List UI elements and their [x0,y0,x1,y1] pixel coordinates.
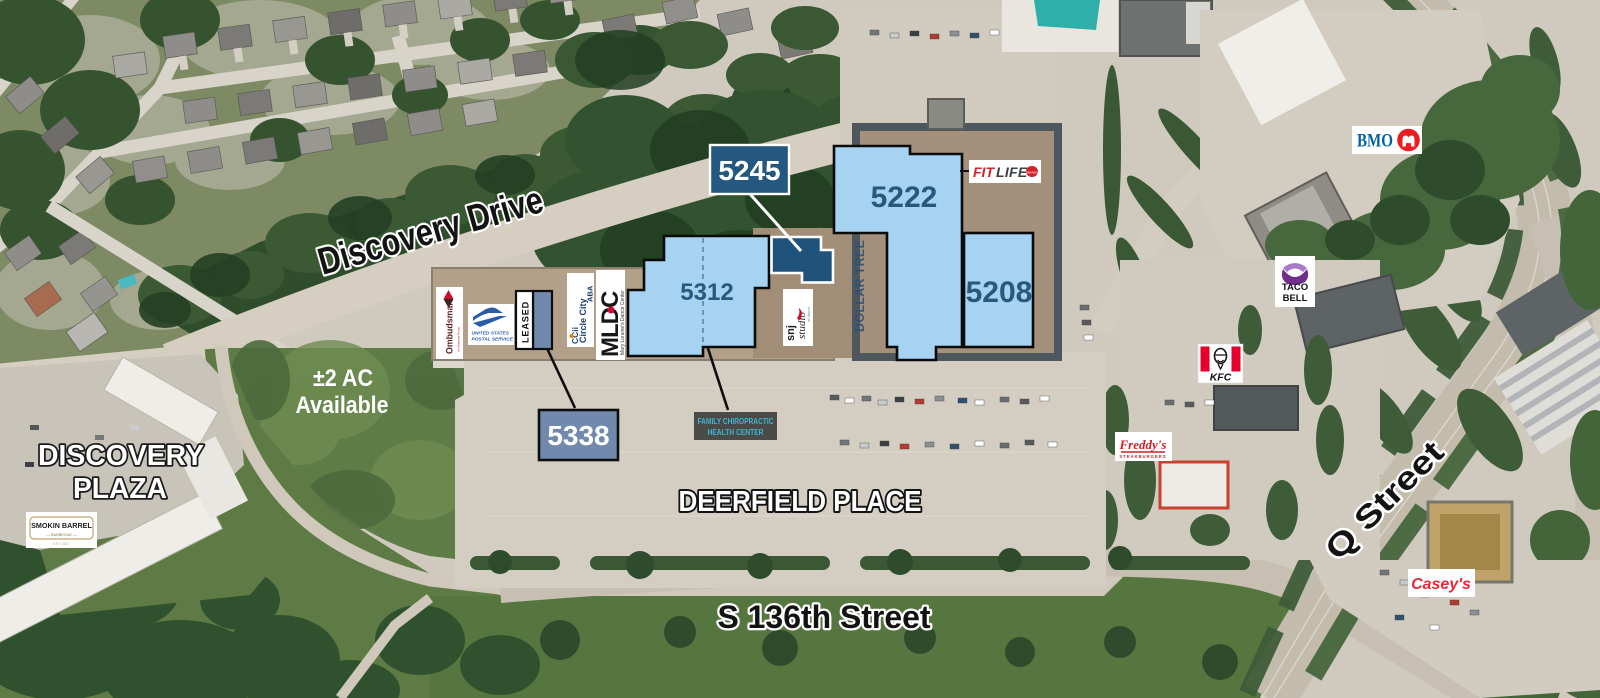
svg-text:FIT: FIT [973,164,995,180]
svg-text:ABA: ABA [586,285,595,302]
svg-text:HEALTH CENTER: HEALTH CENTER [708,428,764,437]
svg-text:SMOKIN BARREL: SMOKIN BARREL [31,521,92,530]
svg-text:Mary Loraine's Dance Center: Mary Loraine's Dance Center [620,290,626,355]
svg-text:S 136th Street: S 136th Street [718,599,931,635]
svg-text:BELL: BELL [1283,293,1308,304]
svg-text:5208: 5208 [966,276,1033,309]
svg-text:5312: 5312 [680,279,733,306]
svg-text:DISCOVERY: DISCOVERY [38,440,204,472]
svg-text:BRANDS: BRANDS [1026,171,1039,175]
svg-text:Casey's: Casey's [1411,576,1471,593]
svg-text:Freddy's: Freddy's [1119,437,1167,452]
svg-text:Ombudsman: Ombudsman [445,300,455,354]
svg-text:5338: 5338 [547,420,609,451]
svg-text:DOLLAR TREE: DOLLAR TREE [853,240,867,332]
svg-text:POSTAL SERVICE: POSTAL SERVICE [472,337,514,343]
svg-text:TACO: TACO [1282,282,1308,293]
svg-text:An Alternate Route: An Alternate Route [457,326,461,352]
svg-text:PLAZA: PLAZA [73,473,167,505]
svg-text:STEAKBURGERS: STEAKBURGERS [1119,454,1166,459]
svg-text:5222: 5222 [871,181,938,214]
svg-text:UNITED STATES: UNITED STATES [472,331,510,337]
svg-text:FAMILY CHIROPRACTIC: FAMILY CHIROPRACTIC [698,417,774,426]
svg-text:EST. 2017: EST. 2017 [53,542,69,546]
svg-text:±2 AC: ±2 AC [313,365,373,392]
svg-text:DEERFIELD PLACE: DEERFIELD PLACE [679,486,922,518]
svg-text:LEASED: LEASED [521,301,531,343]
svg-text:Circle City: Circle City [578,298,588,343]
svg-text:KFC: KFC [1210,372,1232,384]
svg-text:5245: 5245 [718,155,780,186]
svg-text:of dance: of dance [806,306,811,322]
svg-text:— BARBECUE —: — BARBECUE — [46,533,77,537]
svg-text:Available: Available [296,392,389,419]
svg-text:BMO: BMO [1357,131,1393,152]
svg-text:LIFE: LIFE [996,164,1028,180]
